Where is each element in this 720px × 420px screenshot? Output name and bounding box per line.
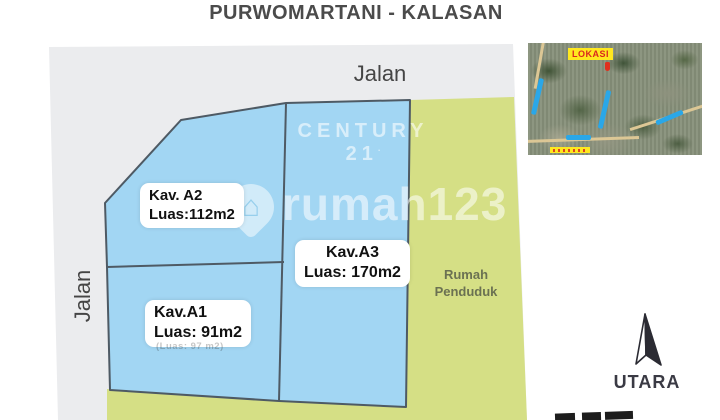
plot-a1-name: Kav.A1 <box>154 303 242 323</box>
map-road-name-bar <box>550 147 590 153</box>
scale-segment <box>605 411 633 420</box>
plot-a1-area: Luas: 91m2 <box>154 323 242 343</box>
north-arrow-icon <box>612 308 682 372</box>
plot-label-a1: Kav.A1 Luas: 91m2 <box>145 300 251 347</box>
century21-watermark: CENTURY 21. <box>278 120 448 166</box>
scale-segment <box>582 412 601 420</box>
north-label: UTARA <box>606 372 688 393</box>
scale-segment <box>555 413 575 420</box>
plot-a3-area: Luas: 170m2 <box>304 263 401 283</box>
map-scale-bar <box>555 408 645 420</box>
plot-a3-name: Kav.A3 <box>304 243 401 263</box>
plot-label-a3: Kav.A3 Luas: 170m2 <box>295 240 410 287</box>
location-marker-icon <box>605 62 610 71</box>
road-label-left: Jalan <box>68 253 98 339</box>
north-arrow-right-half <box>645 314 661 365</box>
plot-label-a2: Kav. A2 Luas:112m2 <box>140 183 244 228</box>
neighbor-label: Rumah Penduduk <box>420 266 512 300</box>
rumah123-watermark: ⌂ rumah123 <box>228 178 507 230</box>
plot-a1-old-area-ghost: (Luas: 97 m2) <box>156 341 224 352</box>
lokasi-label: LOKASI <box>568 48 613 60</box>
map-highlight-stripe <box>598 90 612 129</box>
plot-a2-name: Kav. A2 <box>149 186 235 205</box>
plot-a2-area: Luas:112m2 <box>149 205 235 224</box>
registered-dot: . <box>378 143 381 153</box>
map-highlight-stripe <box>566 135 591 140</box>
location-inset-map: LOKASI <box>528 43 702 155</box>
site-plan-flyer: PURWOMARTANI - KALASAN CENTURY 21. ⌂ rum… <box>0 0 720 420</box>
road-label-top: Jalan <box>339 61 421 87</box>
map-highlight-stripe <box>531 78 544 115</box>
